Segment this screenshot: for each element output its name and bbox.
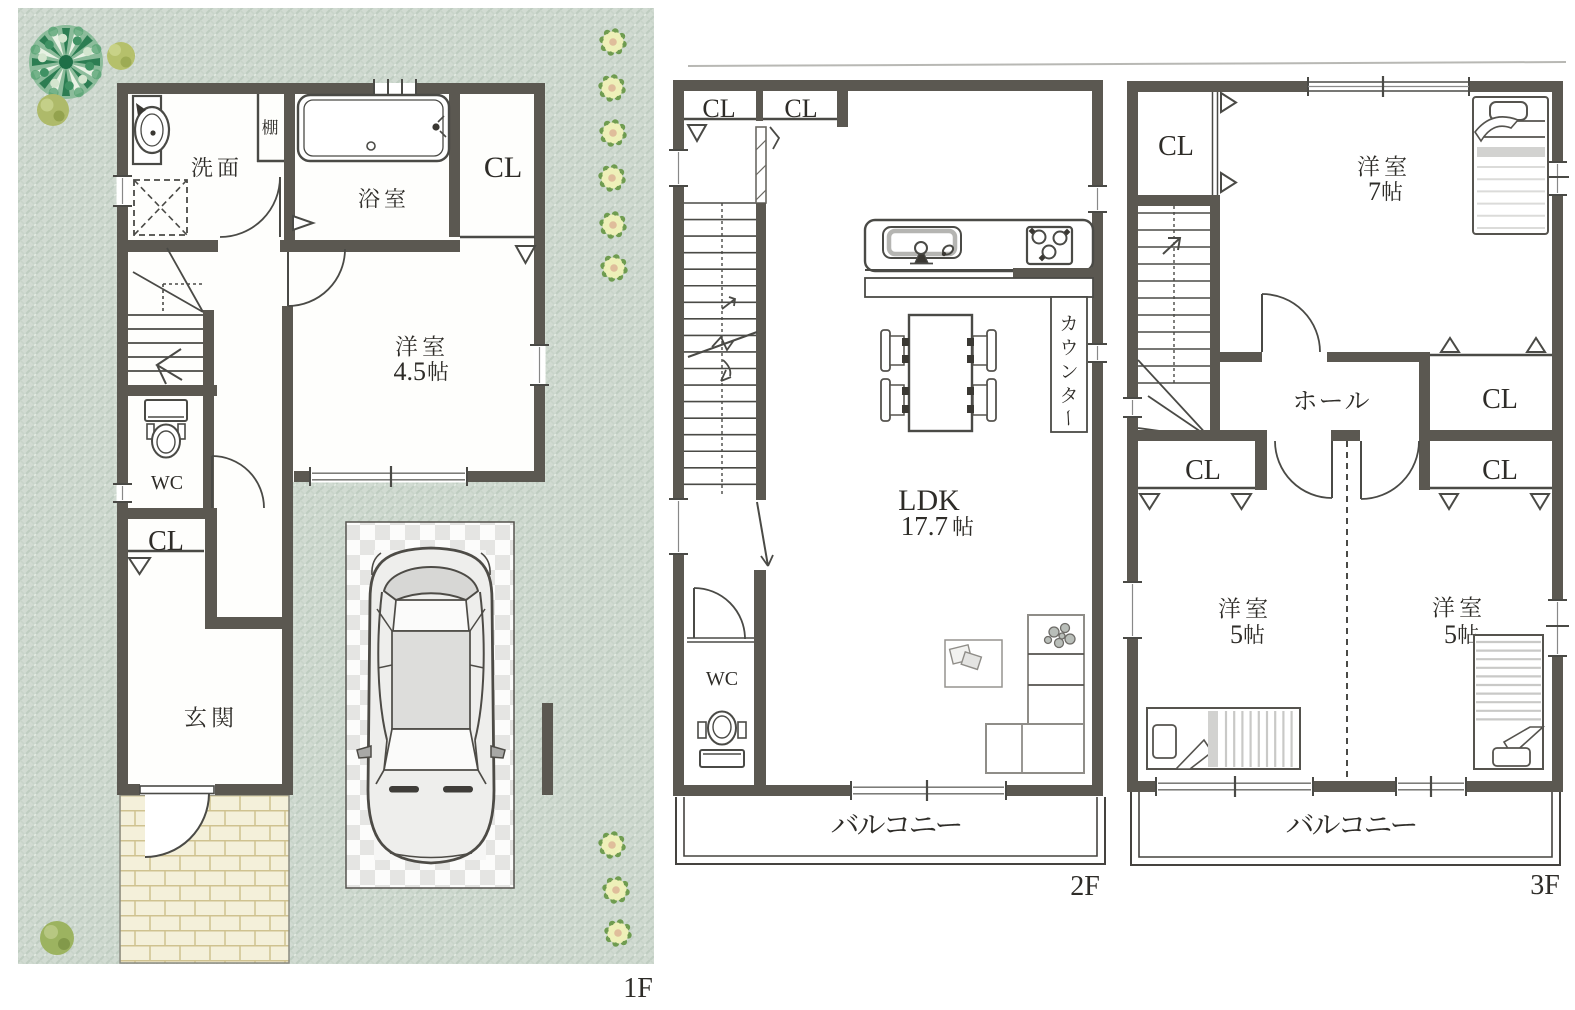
svg-text:CL: CL [784,94,817,123]
svg-text:WC: WC [151,472,183,494]
svg-text:17.7: 17.7 [901,511,948,541]
svg-text:CL: CL [1185,455,1221,486]
svg-text:CL: CL [1482,384,1518,415]
svg-text:3F: 3F [1530,870,1560,901]
svg-text:4.5: 4.5 [394,357,427,386]
svg-text:CL: CL [702,94,735,123]
svg-text:1F: 1F [623,973,653,1004]
svg-text:CL: CL [1482,455,1518,486]
svg-text:7: 7 [1368,177,1381,206]
svg-text:2F: 2F [1070,871,1100,902]
svg-text:CL: CL [1158,131,1194,162]
svg-text:5: 5 [1444,620,1457,649]
svg-text:WC: WC [706,668,738,690]
svg-text:CL: CL [484,151,522,184]
svg-text:CL: CL [148,526,184,557]
svg-text:5: 5 [1230,620,1243,649]
